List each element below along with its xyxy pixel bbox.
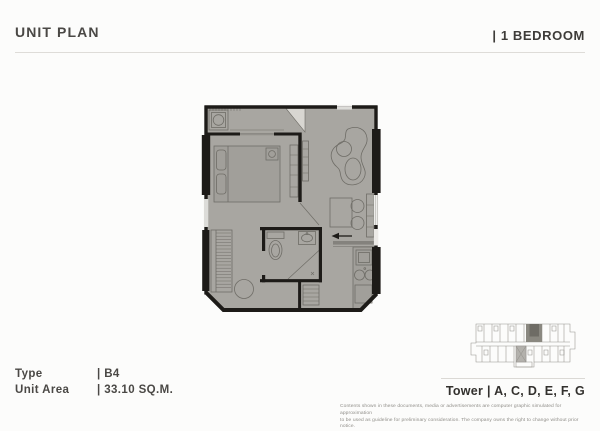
unit-category: | 1 BEDROOM: [492, 28, 585, 43]
tower-key-plan: [468, 317, 582, 376]
area-label: Unit Area: [15, 382, 97, 398]
highlighted-unit: [526, 324, 542, 342]
info-row-area: Unit Area | 33.10 SQ.M.: [15, 382, 173, 398]
header-divider: [15, 52, 585, 53]
disclaimer: Contents shown in these documents, media…: [340, 404, 586, 431]
bed: [214, 146, 280, 202]
info-row-type: Type | B4: [15, 366, 173, 382]
page-title: UNIT PLAN: [15, 24, 100, 40]
area-value: | 33.10 SQ.M.: [97, 382, 173, 398]
unit-plan-page: UNIT PLAN | 1 BEDROOM: [0, 0, 600, 425]
unit-info: Type | B4 Unit Area | 33.10 SQ.M.: [15, 366, 173, 398]
disclaimer-line-1: Contents shown in these documents, media…: [340, 404, 586, 418]
tower-list: Tower | A, C, D, E, F, G: [446, 384, 585, 398]
disclaimer-line-2: to be used as guideline for preliminary …: [340, 418, 586, 431]
tower-divider: [441, 378, 585, 379]
type-value: | B4: [97, 366, 120, 382]
type-label: Type: [15, 366, 97, 382]
unit-floor-plan: [200, 99, 382, 322]
entrance-threshold: [333, 241, 376, 245]
